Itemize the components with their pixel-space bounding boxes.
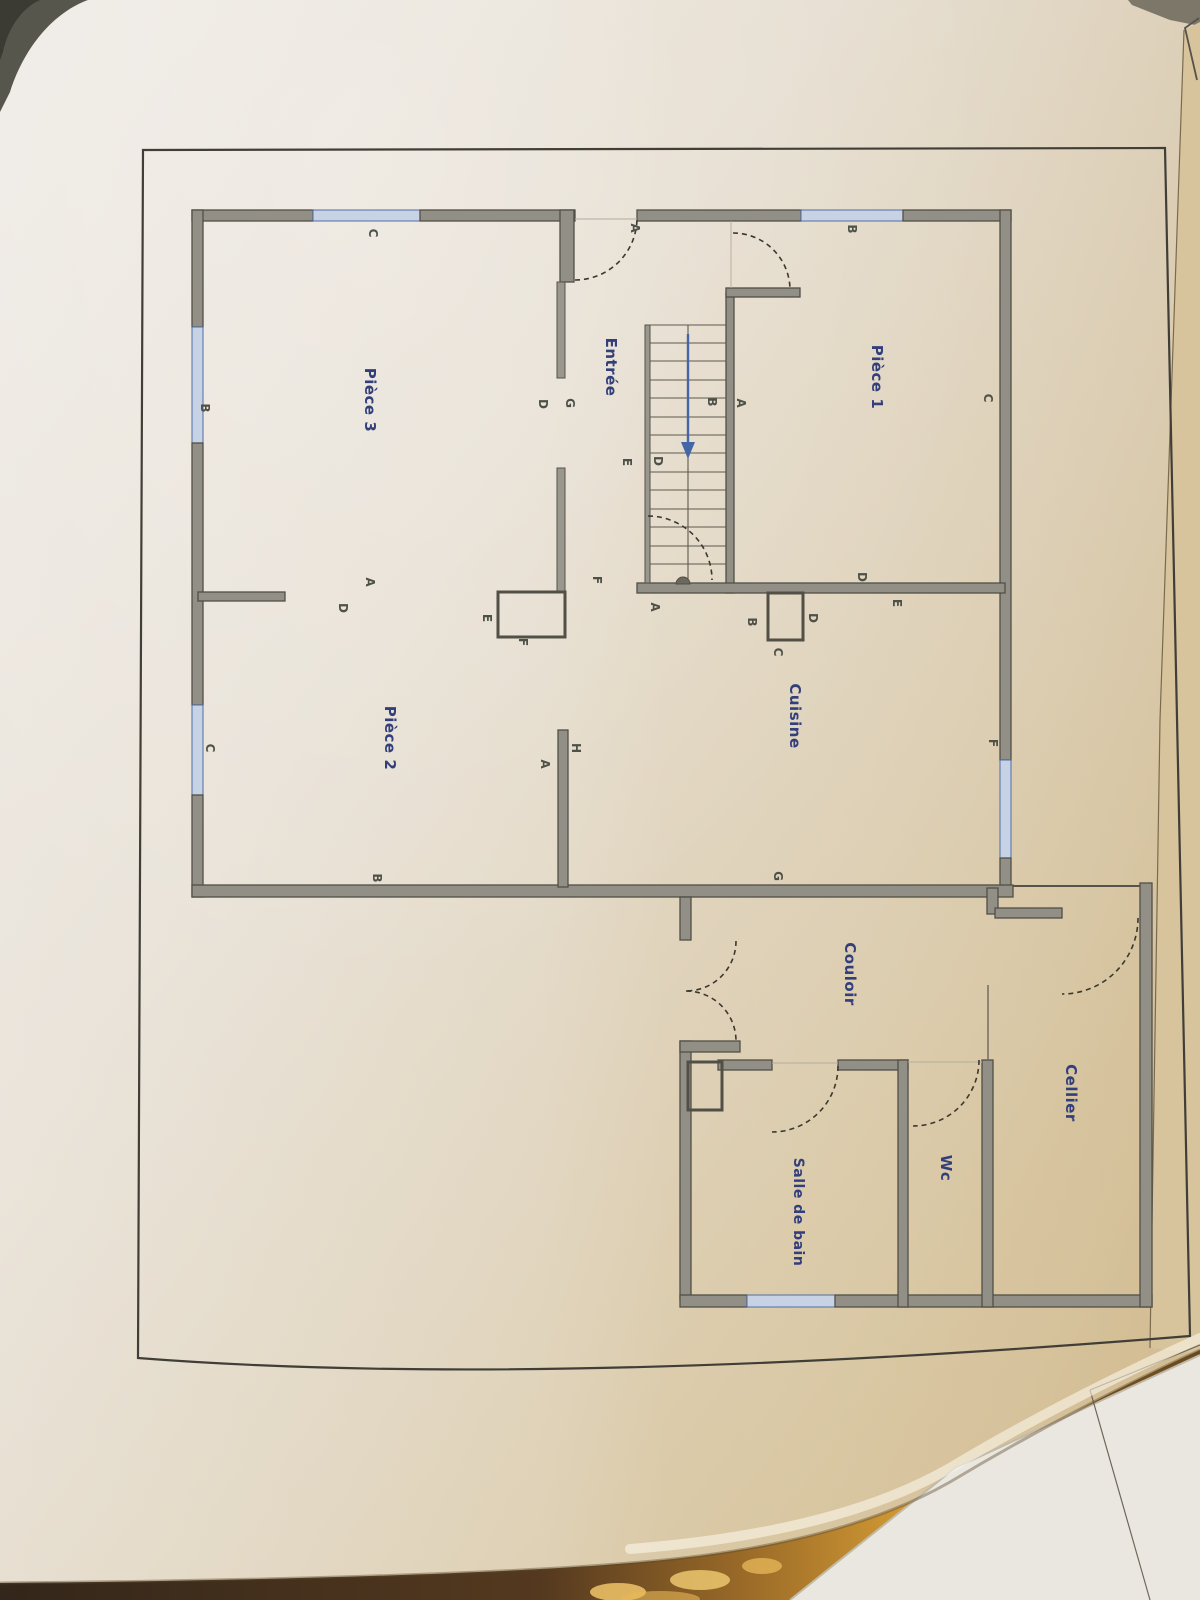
ref-letter: F [986,739,1000,747]
wall-segment [982,1060,993,1307]
ref-letter: E [620,458,634,466]
wall-segment [995,908,1062,918]
ref-letter: E [480,614,494,622]
stair-side-wall [645,325,650,583]
window [192,705,203,795]
ref-letter: F [590,576,604,584]
ref-letter: A [734,398,748,408]
ref-letter: H [569,743,583,753]
window [1000,760,1011,858]
window [313,210,420,221]
ref-letter: D [336,603,350,613]
ref-letter: A [538,759,552,769]
ref-letter: C [771,648,785,657]
wall-segment [198,592,285,601]
ref-letter: C [203,744,217,753]
ref-letter: C [981,394,995,403]
ref-letter: D [536,399,550,409]
wall-segment [192,885,1013,897]
ref-letter: E [890,599,904,607]
room-label-wc: Wc [937,1155,955,1181]
wall-segment [192,443,203,705]
room-label-cellier: Cellier [1062,1064,1080,1122]
ref-letter: B [198,403,212,412]
wall-segment [420,210,575,221]
wood-highlight [742,1558,782,1574]
room-label-salle-de-bain: Salle de bain [790,1158,806,1267]
ref-letter: A [648,602,662,612]
window [747,1295,835,1307]
wall-segment [1000,210,1011,760]
wall-segment [898,1060,908,1307]
wall-segment [637,583,1005,593]
wall-segment [557,468,565,592]
wall-segment [718,1060,772,1070]
ref-letter: B [745,617,759,626]
ref-letter: A [363,577,377,587]
room-label-piece-1: Pièce 1 [868,345,886,410]
wall-segment [560,210,574,282]
wall-segment [192,210,313,221]
room-label-cuisine: Cuisine [786,683,804,748]
wall-segment [680,1295,747,1307]
wall-segment [726,288,800,297]
wall-segment [637,210,801,221]
wall-segment [192,210,203,327]
ref-letter: D [651,456,665,466]
wall-segment [558,730,568,887]
room-label-entree: Entrée [602,338,620,397]
wood-highlight [670,1570,730,1590]
wall-segment [726,293,734,593]
ref-letter: D [855,572,869,582]
ref-letter: G [771,871,785,881]
room-label-couloir: Couloir [841,942,859,1006]
wall-segment [680,897,691,940]
wall-segment [192,795,203,897]
ref-letter: B [705,397,719,406]
window [801,210,903,221]
ref-letter: F [516,638,530,646]
ref-letter: D [806,613,820,623]
ref-letter: B [370,873,384,882]
photo-of-floor-plan: Pièce 1 Pièce 2 Pièce 3 Entrée Cuisine C… [0,0,1200,1600]
wall-segment [903,210,1011,221]
wall-segment [557,282,565,378]
room-label-piece-3: Pièce 3 [361,368,379,433]
wall-segment [680,1041,740,1052]
ref-letter: G [563,398,577,408]
ref-letter: B [845,224,859,233]
ref-letter: A [628,223,642,233]
floor-plan-canvas: Pièce 1 Pièce 2 Pièce 3 Entrée Cuisine C… [0,0,1200,1600]
wall-segment [1140,883,1152,1307]
room-label-piece-2: Pièce 2 [381,706,399,771]
ref-letter: C [366,229,380,238]
window [192,327,203,443]
